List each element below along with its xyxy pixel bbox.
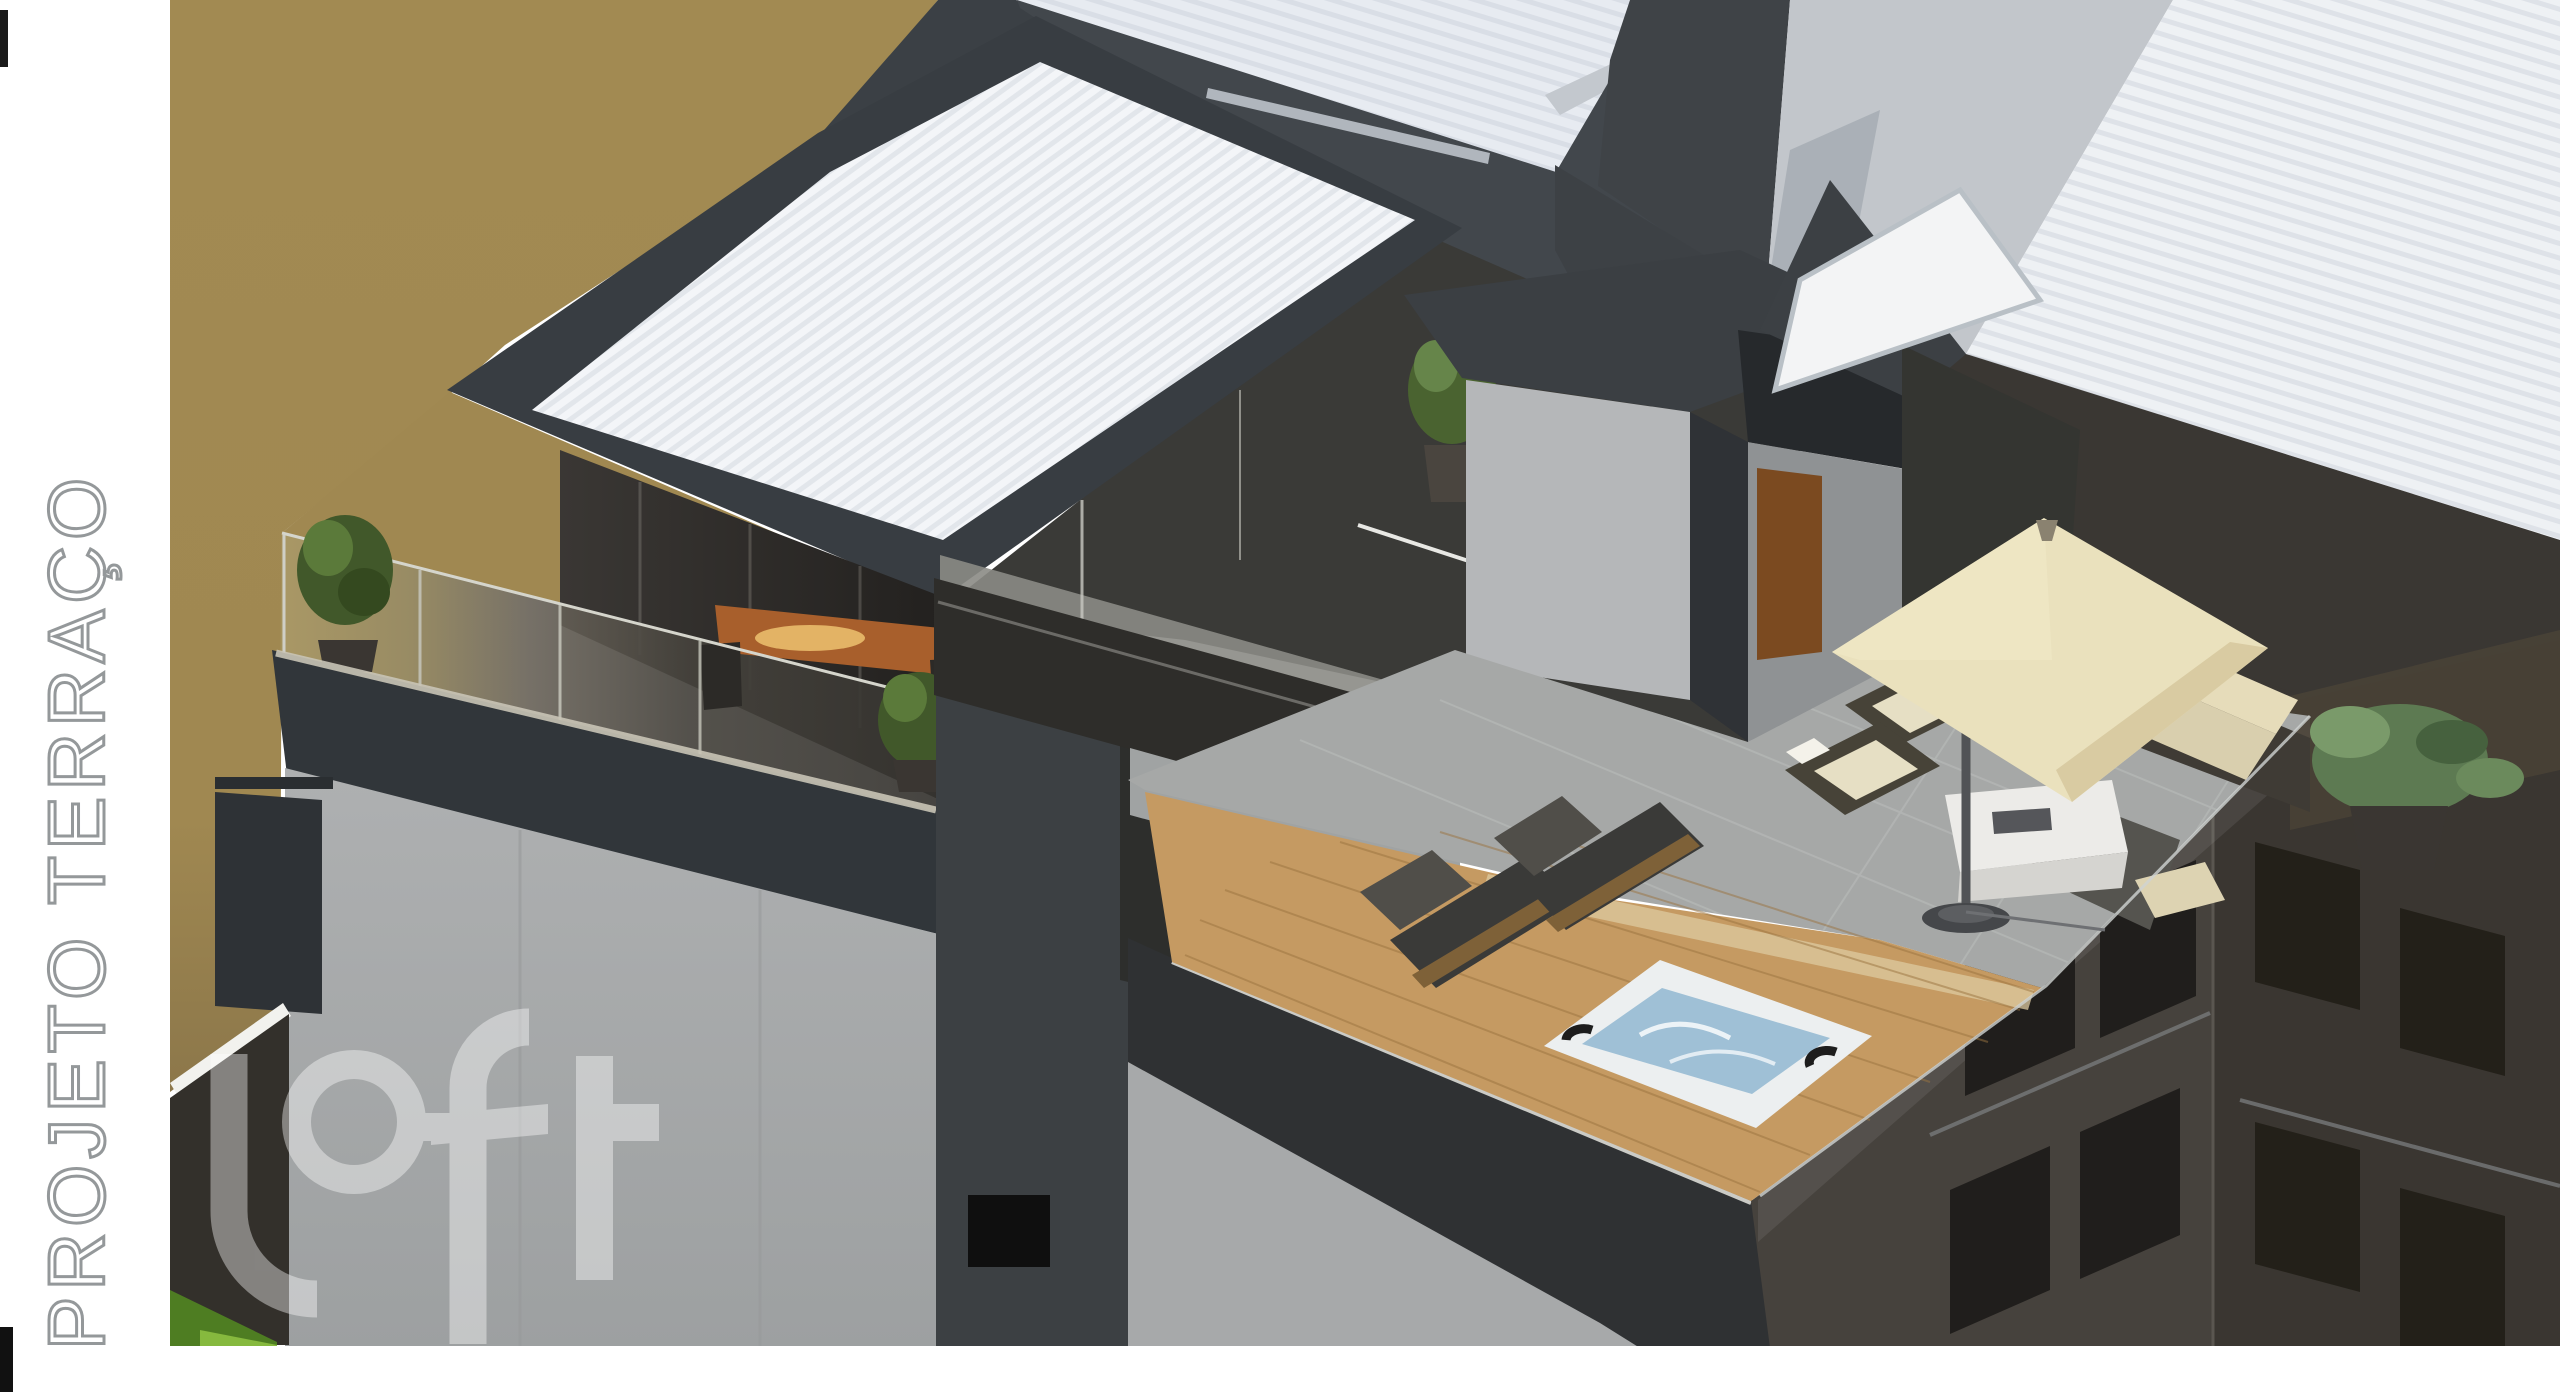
svg-text:PROJETO TERRAÇO: PROJETO TERRAÇO (32, 472, 121, 1350)
